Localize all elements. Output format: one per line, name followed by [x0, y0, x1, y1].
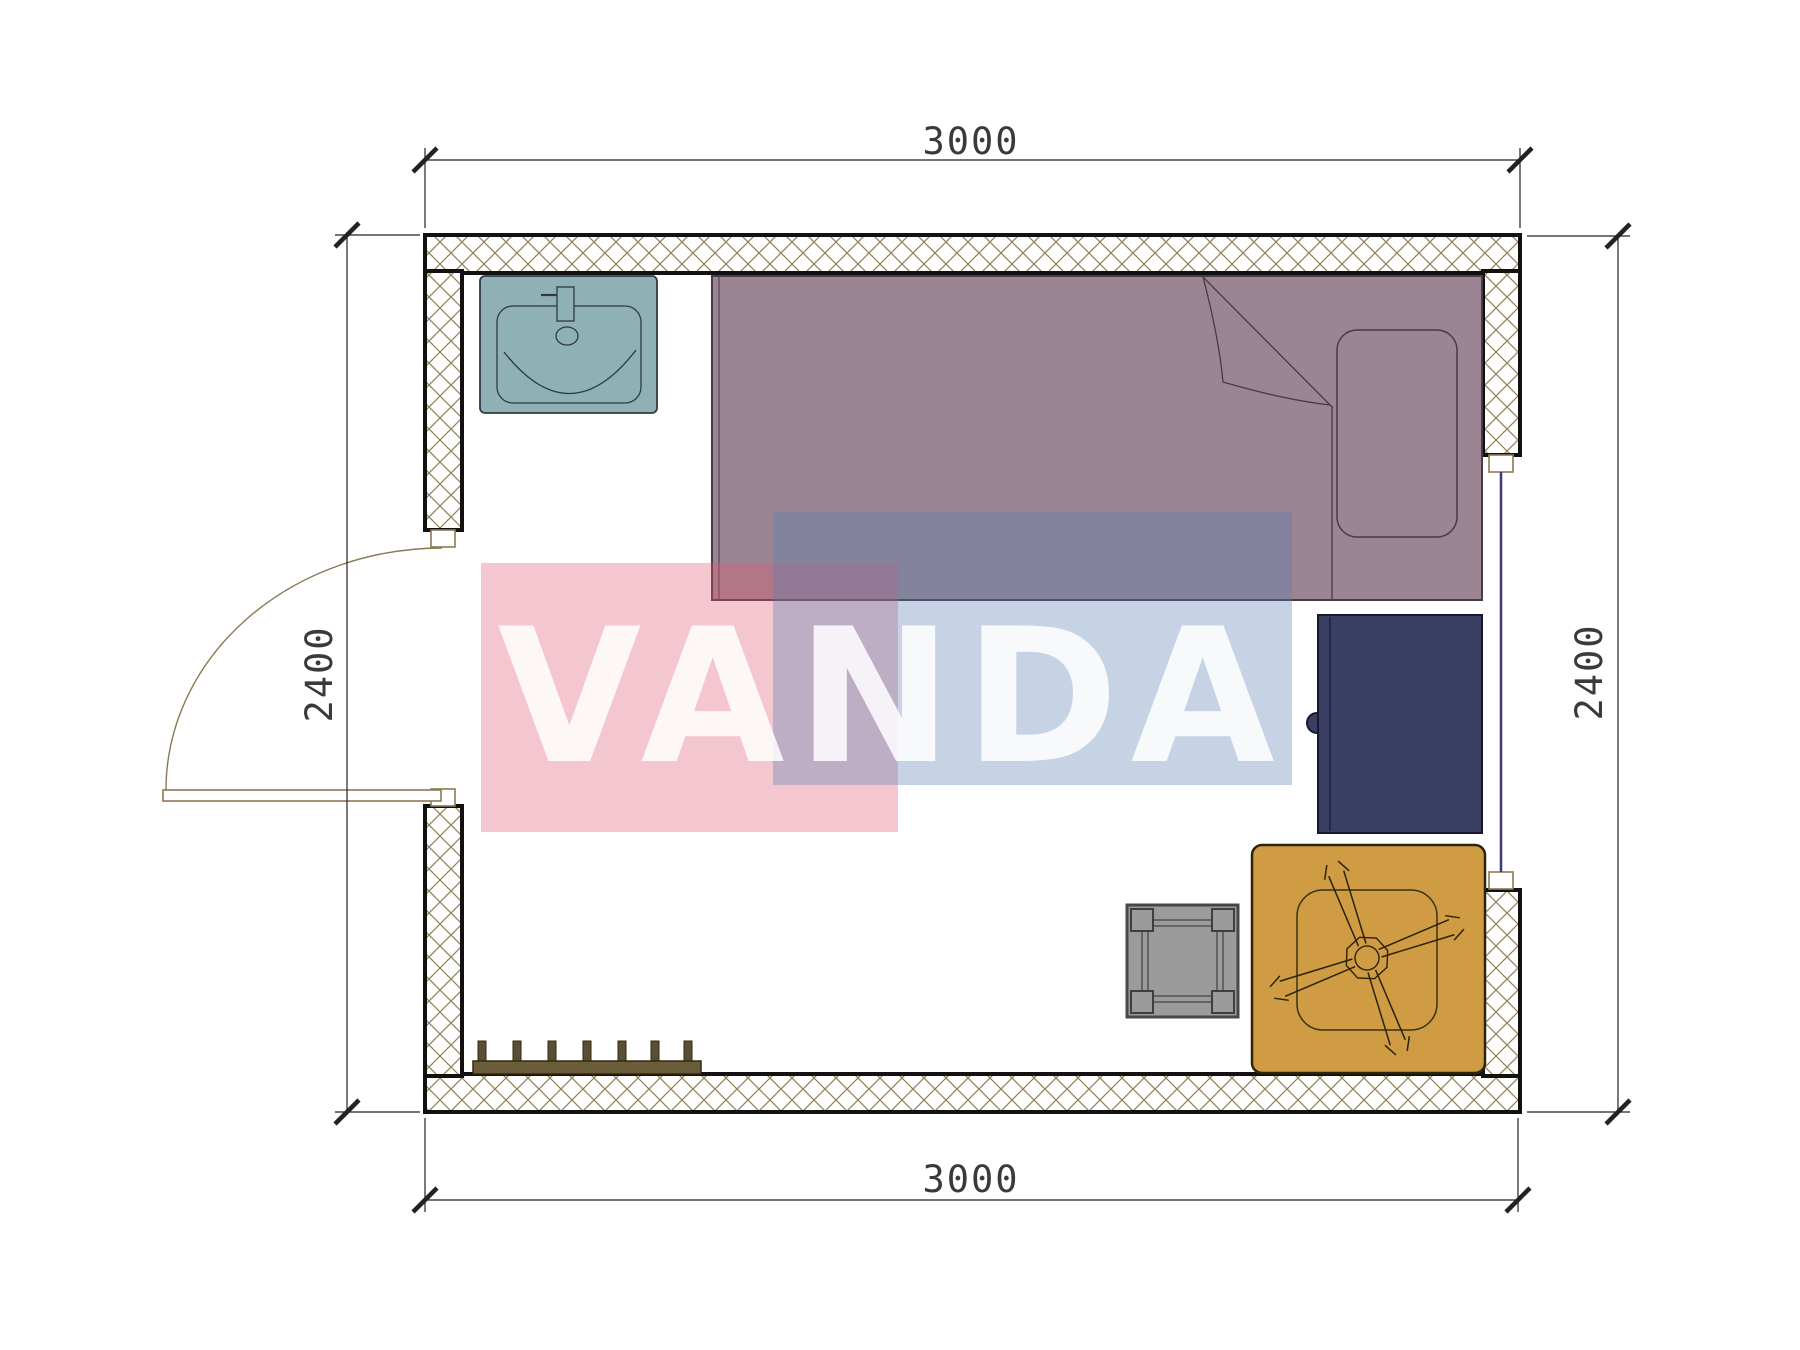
door-leaf: [163, 790, 441, 801]
dimension-label-bottom: 3000: [922, 1158, 1019, 1201]
pillow-icon: [1337, 330, 1457, 537]
window-jamb-bottom: [1489, 872, 1513, 889]
watermark-text: VANDA: [497, 596, 1287, 796]
window-jamb-top: [1489, 455, 1513, 472]
wall-bottom: [425, 1074, 1520, 1112]
wall-right-lower: [1483, 890, 1520, 1076]
wall-left-lower: [425, 806, 462, 1076]
door-jamb-top: [431, 530, 455, 547]
sink-icon: [480, 276, 657, 413]
dimension-label-right: 2400: [1568, 623, 1611, 720]
dimension-label-top: 3000: [922, 120, 1019, 163]
coat-rack-icon: [473, 1041, 701, 1074]
wall-right-upper: [1483, 271, 1520, 455]
wall-top: [425, 235, 1520, 273]
floor-plan: 3000 3000 2400 2400 VANDA: [0, 0, 1800, 1350]
stool-icon: [1127, 905, 1238, 1017]
dimension-label-left: 2400: [298, 625, 341, 722]
desk-cabinet-icon: [1307, 615, 1482, 833]
wall-left-upper: [425, 271, 462, 530]
table-with-fan-icon: [1238, 829, 1497, 1088]
